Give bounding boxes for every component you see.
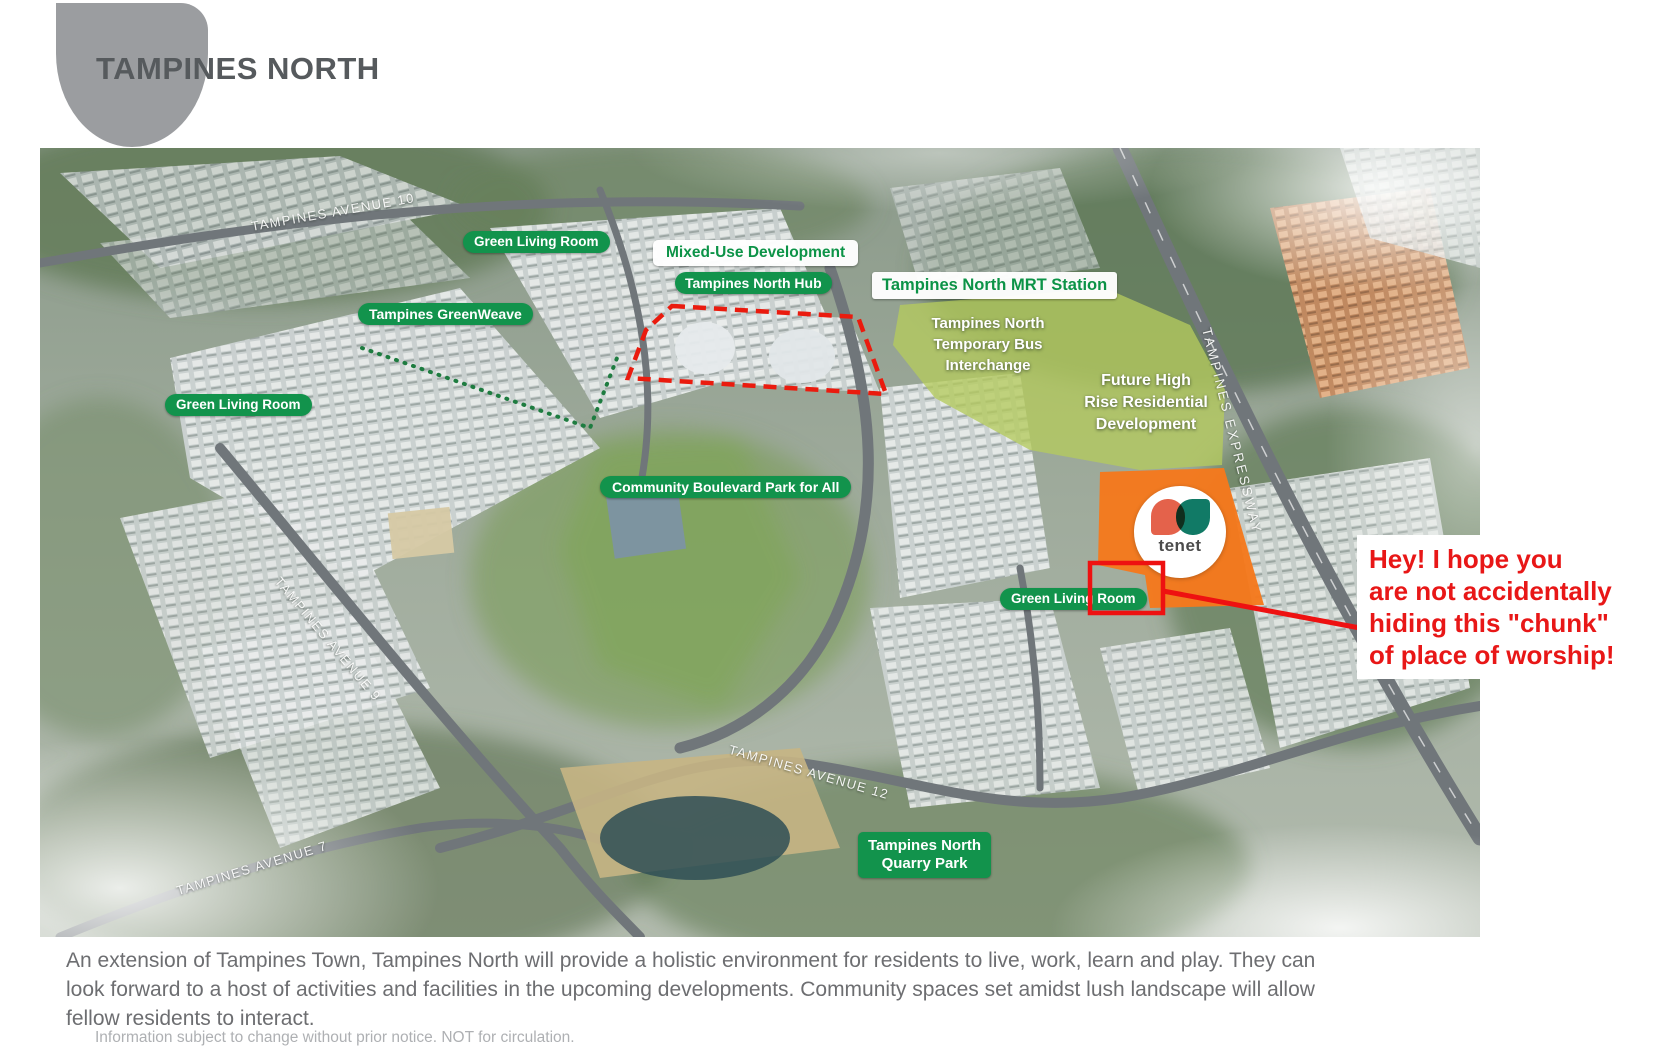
label-mrt-station: Tampines North MRT Station bbox=[872, 272, 1117, 299]
page-title: TAMPINES NORTH bbox=[96, 51, 380, 87]
caption-paragraph: An extension of Tampines Town, Tampines … bbox=[66, 946, 1336, 1033]
page: TAMPINES NORTH bbox=[0, 0, 1665, 1059]
masterplan-map: TAMPINES AVENUE 10 TAMPINES AVENUE 9 TAM… bbox=[40, 148, 1480, 937]
tenet-petals-icon bbox=[1134, 499, 1226, 535]
label-quarry-park: Tampines North Quarry Park bbox=[858, 832, 991, 878]
label-mixed-use-development: Mixed-Use Development bbox=[653, 240, 858, 266]
map-base-art bbox=[40, 148, 1480, 937]
label-green-living-room-right: Green Living Room bbox=[1000, 588, 1147, 610]
label-bus-interchange: Tampines North Temporary Bus Interchange bbox=[903, 313, 1073, 376]
fineprint-disclaimer: Information subject to change without pr… bbox=[95, 1029, 575, 1047]
tenet-logo: tenet bbox=[1134, 486, 1226, 578]
label-community-boulevard-park: Community Boulevard Park for All bbox=[600, 476, 851, 498]
label-tampines-greenweave: Tampines GreenWeave bbox=[358, 303, 533, 325]
label-future-development: Future High Rise Residential Development bbox=[1061, 370, 1231, 436]
label-green-living-room-left: Green Living Room bbox=[165, 394, 312, 416]
tenet-wordmark: tenet bbox=[1134, 536, 1226, 556]
label-tampines-north-hub: Tampines North Hub bbox=[675, 272, 832, 294]
label-green-living-room-top: Green Living Room bbox=[463, 231, 610, 253]
annotation-note: Hey! I hope you are not accidentally hid… bbox=[1357, 535, 1665, 679]
